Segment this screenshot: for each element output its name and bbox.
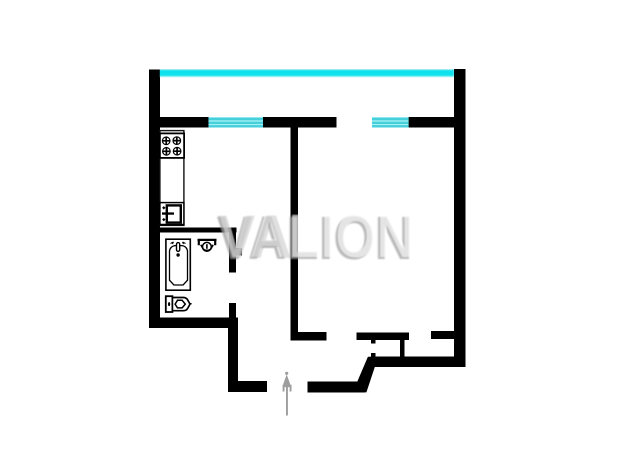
svg-text:VA: VA [218,203,292,272]
